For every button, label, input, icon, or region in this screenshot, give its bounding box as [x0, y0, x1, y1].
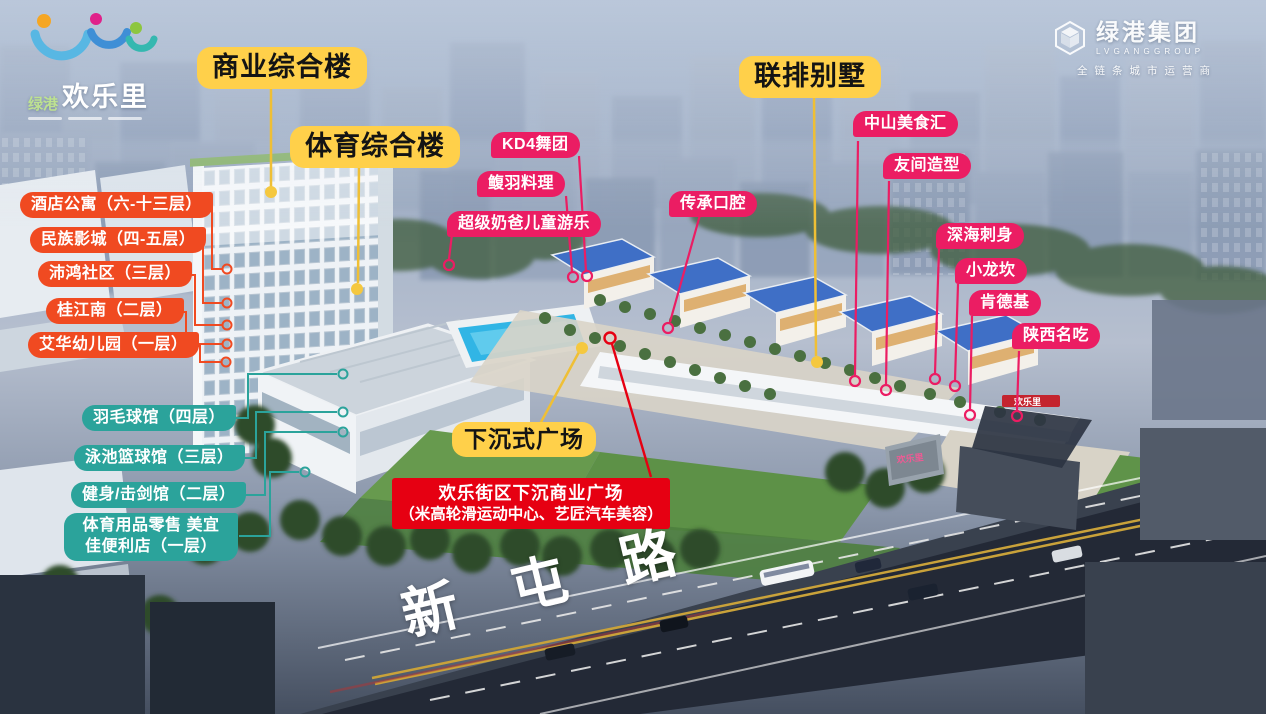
label-sports-retail-store: 体育用品零售 美宜佳便利店（一层）	[64, 513, 238, 561]
label-sunken-plaza: 下沉式广场	[452, 422, 596, 457]
label-fuyu-cuisine: 鳆羽料理	[477, 171, 565, 197]
label-chuancheng-dental: 传承口腔	[669, 191, 757, 217]
label-aihua-kindergarten: 艾华幼儿园（一层）	[28, 332, 199, 358]
poster-canvas: 欢乐里 欢乐里	[0, 0, 1266, 714]
label-minzu-cinema: 民族影城（四-五层）	[30, 227, 206, 253]
label-zhongshan-food: 中山美食汇	[853, 111, 958, 137]
label-guijiangnan: 桂江南（二层）	[46, 298, 184, 324]
label-sports-complex: 体育综合楼	[290, 126, 460, 168]
notice-line1: 欢乐街区下沉商业广场	[396, 482, 666, 505]
label-kd4-dance: KD4舞团	[491, 132, 580, 158]
label-superdad-kids-play: 超级奶爸儿童游乐	[447, 211, 601, 237]
huanleli-smile-icon	[28, 12, 158, 68]
logo-huanleli: 绿港 欢乐里	[28, 12, 198, 120]
label-badminton-hall: 羽毛球馆（四层）	[82, 405, 236, 431]
group-name: 绿港集团	[1096, 21, 1204, 44]
label-townhouses: 联排别墅	[739, 56, 881, 98]
label-pool-basketball-hall: 泳池篮球馆（三层）	[74, 445, 245, 471]
label-kfc: 肯德基	[969, 290, 1041, 316]
label-xiaolongkan: 小龙坎	[955, 258, 1027, 284]
group-latin: LVGANGGROUP	[1096, 47, 1204, 56]
logo-brand-name: 欢乐里	[62, 75, 149, 114]
label-shaanxi-food: 陕西名吃	[1012, 323, 1100, 349]
lvgang-hexagon-icon	[1052, 20, 1088, 56]
logo-brand-prefix: 绿港	[28, 93, 58, 114]
label-youjian-salon: 友间造型	[883, 153, 971, 179]
label-gym-fencing-hall: 健身/击剑馆（二层）	[71, 482, 246, 508]
label-hotel-apartment: 酒店公寓（六-十三层）	[20, 192, 213, 218]
sports-retail-line1: 体育用品零售	[83, 517, 182, 534]
logo-lvgang-group: 绿港集团 LVGANGGROUP 全链条城市运营商	[1052, 20, 1242, 78]
group-tagline: 全链条城市运营商	[1052, 63, 1242, 78]
logo-tagline-bars	[28, 117, 198, 120]
label-commercial-complex: 商业综合楼	[197, 47, 367, 89]
label-deepsea-sashimi: 深海刺身	[936, 223, 1024, 249]
label-peihong-community: 沛鸿社区（三层）	[38, 261, 192, 287]
